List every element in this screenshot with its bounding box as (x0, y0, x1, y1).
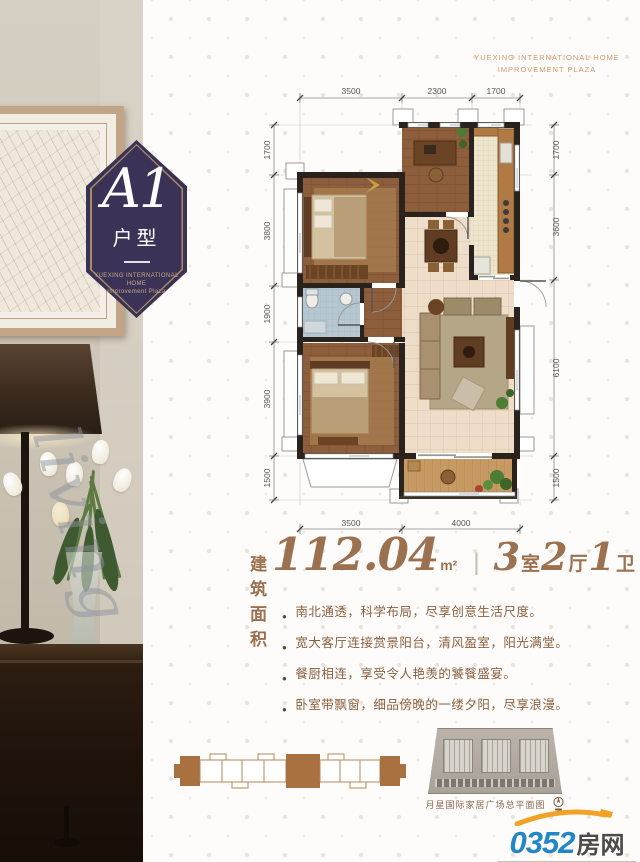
dim-left-0: 1700 (262, 140, 272, 159)
dim-left-2: 1900 (262, 304, 272, 323)
dim-right-0: 1700 (551, 140, 561, 159)
feature-item: ● 卧室带飘窗，细品傍晚的一缕夕阳，尽享浪漫。 (282, 697, 627, 718)
feature-text-4: 卧室带飘窗，细品傍晚的一缕夕阳，尽享浪漫。 (295, 697, 568, 714)
area-divider: | (473, 549, 479, 577)
dim-top-0: 3500 (342, 86, 361, 96)
bullet-icon: ● (282, 701, 287, 718)
area-label: 建筑面积 (250, 550, 272, 650)
site-plan-thumbnail (428, 728, 562, 794)
dim-left-3: 3900 (262, 389, 272, 408)
key-plan-outline (174, 754, 406, 788)
feature-item: ● 南北通透，科学布局，尽享创意生活尺度。 (282, 604, 627, 625)
area-value: 112.04 (272, 532, 438, 577)
badge-divider (124, 261, 150, 263)
building-key-plan (172, 740, 408, 804)
logo-number: 0352 (510, 828, 575, 858)
baths-count: 1 (589, 538, 615, 576)
poster-canvas: living A1 户型 YUEXING INTERNATIONAL HOME … (0, 0, 640, 862)
baths-unit: 卫 (616, 549, 635, 576)
site-block-2 (481, 739, 511, 773)
feature-text-2: 宽大客厅连接赏景阳台，清风盈室，阳光满堂。 (295, 635, 568, 652)
site-block-1 (443, 739, 473, 773)
frame-sketch (0, 130, 100, 312)
bullet-icon: ● (282, 639, 287, 656)
unit-type-label: 户型 (86, 222, 187, 251)
unit-code: A1 (86, 158, 187, 220)
feature-item: ● 宽大客厅连接赏景阳台，清风盈室，阳光满堂。 (282, 635, 627, 656)
hallway-floor (362, 287, 402, 337)
candlestick (52, 806, 82, 858)
dim-left-4: 1500 (262, 468, 272, 487)
halls-unit: 厅 (569, 549, 588, 576)
feature-list: ● 南北通透，科学布局，尽享创意生活尺度。 ● 宽大客厅连接赏景阳台，清风盈室，… (282, 604, 627, 728)
corner-mark-line2: IMPROVEMENT PLAZA (462, 64, 632, 76)
site-logo: 0352 房网 www.0352fang.com (498, 806, 636, 860)
badge-org-line1: YUEXING INTERNATIONAL HOME (86, 272, 187, 288)
dim-right-1: 3600 (551, 217, 561, 236)
site-road-band (435, 779, 555, 787)
dim-bottom-0: 3500 (342, 518, 361, 528)
rooms-count: 3 (494, 538, 520, 576)
corner-mark: YUEXING INTERNATIONAL HOME IMPROVEMENT P… (462, 52, 632, 76)
halls-count: 2 (541, 538, 567, 576)
floor-plan-svg: 3500 2300 1700 1700 3800 1900 3900 1500 … (248, 85, 580, 563)
dim-left-1: 3800 (262, 221, 272, 240)
dim-top-1: 2300 (428, 86, 447, 96)
logo-roof-icon (501, 806, 633, 826)
dim-bottom-1: 4000 (452, 518, 471, 528)
feature-item: ● 餐厨相连，享受令人艳羡的饕餮盛宴。 (282, 666, 627, 687)
corner-mark-line1: YUEXING INTERNATIONAL HOME (462, 52, 632, 64)
bullet-icon: ● (282, 608, 287, 625)
site-block-3 (519, 739, 549, 773)
rooms-unit: 室 (521, 549, 540, 576)
feature-text-1: 南北通透，科学布局，尽享创意生活尺度。 (295, 604, 542, 621)
dim-top-2: 1700 (487, 86, 506, 96)
logo-name: 房网 (576, 825, 624, 860)
unit-badge: A1 户型 YUEXING INTERNATIONAL HOME Improve… (86, 140, 187, 318)
floor-plan: 3500 2300 1700 1700 3800 1900 3900 1500 … (248, 85, 580, 563)
dim-right-2: 6100 (551, 358, 561, 377)
bullet-icon: ● (282, 670, 287, 687)
feature-text-3: 餐厨相连，享受令人艳羡的饕餮盛宴。 (295, 666, 516, 683)
badge-org-line2: Improvement Plaza (86, 288, 187, 296)
area-unit: m² (440, 557, 457, 573)
dim-right-3: 1500 (551, 468, 561, 487)
